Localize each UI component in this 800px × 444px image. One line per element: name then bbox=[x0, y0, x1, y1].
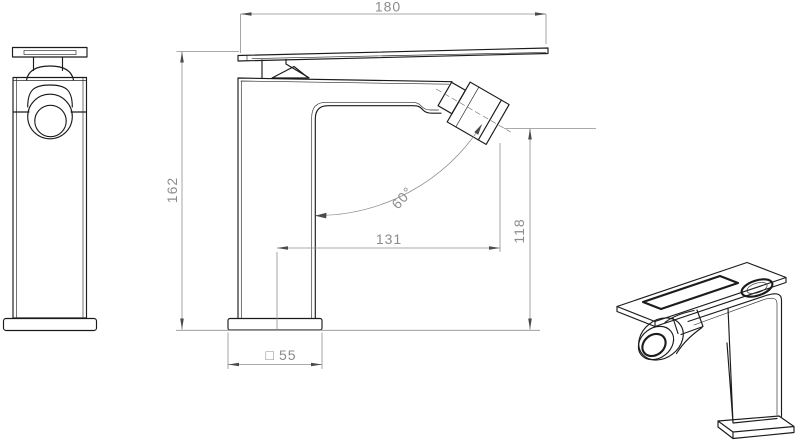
dim-180-lines bbox=[241, 14, 547, 53]
front-aerator-face bbox=[35, 105, 66, 136]
front-view bbox=[4, 48, 97, 331]
dim-162-arrow-bottom bbox=[180, 319, 184, 330]
side-aerator-joint-line bbox=[456, 87, 479, 127]
dim-118-arrow-bottom bbox=[528, 319, 532, 330]
perspective-view bbox=[617, 263, 794, 439]
side-aerator-cap-ring bbox=[478, 100, 501, 140]
dim-60-arrow-top bbox=[474, 124, 482, 135]
dim-118-arrow-top bbox=[528, 129, 532, 140]
dimension-outlet-height: 118 bbox=[504, 129, 596, 330]
side-body-outline bbox=[238, 78, 452, 318]
front-base-plate bbox=[4, 319, 97, 331]
dim-162-arrow-top bbox=[180, 52, 184, 63]
side-arm-underside bbox=[315, 106, 441, 318]
persp-body-column bbox=[688, 294, 782, 423]
dim-60-arrow-left bbox=[315, 213, 327, 219]
dim-162-lines bbox=[177, 52, 240, 330]
dim-spout-reach-label: 131 bbox=[376, 231, 402, 247]
front-body bbox=[13, 78, 87, 319]
square-symbol-icon: □ bbox=[265, 347, 274, 363]
persp-aerator-outer bbox=[630, 309, 691, 368]
dim-overall-width-label: 180 bbox=[375, 0, 401, 15]
dimension-spout-reach: 131 bbox=[277, 143, 500, 329]
dim-131-arrow-right bbox=[489, 246, 500, 250]
dimension-overall-height: 162 bbox=[164, 52, 239, 330]
drawing-canvas: 180 162 131 118 60° □55 bbox=[0, 0, 800, 444]
front-body-edges bbox=[13, 78, 87, 318]
dim-outlet-angle-label: 60° bbox=[388, 183, 416, 212]
side-body-inner-edges bbox=[241, 81, 449, 318]
dim-55-arrow-left bbox=[228, 363, 239, 367]
side-handle-stem bbox=[262, 59, 309, 78]
side-handle-lever bbox=[238, 48, 548, 61]
dimension-outlet-angle: 60° bbox=[315, 124, 482, 218]
dim-131-arrow-left bbox=[277, 246, 288, 250]
persp-aerator-ring bbox=[632, 319, 680, 366]
side-handle-gusset bbox=[272, 67, 309, 79]
dim-55-arrow-right bbox=[311, 363, 322, 367]
side-base-plate bbox=[228, 319, 322, 331]
side-arm-underside-edge bbox=[312, 102, 439, 318]
dim-base-size-label: □55 bbox=[265, 347, 296, 363]
dimension-overall-width: 180 bbox=[241, 0, 547, 53]
dim-outlet-height-label: 118 bbox=[511, 218, 527, 243]
dim-180-arrow-left bbox=[241, 12, 252, 16]
front-handle-slot bbox=[24, 51, 76, 55]
persp-base-plate bbox=[718, 416, 794, 439]
dim-base-size-value: 55 bbox=[279, 347, 297, 363]
persp-aerator bbox=[630, 309, 691, 368]
dim-55-lines bbox=[228, 333, 322, 370]
dim-overall-height-label: 162 bbox=[164, 177, 180, 203]
front-aerator-top bbox=[28, 85, 73, 107]
technical-drawing: 180 162 131 118 60° □55 bbox=[0, 0, 800, 444]
dimension-base-size: □55 bbox=[228, 333, 322, 370]
dim-180-arrow-right bbox=[535, 12, 546, 16]
side-view bbox=[176, 48, 548, 330]
front-handle-stem bbox=[34, 57, 63, 70]
